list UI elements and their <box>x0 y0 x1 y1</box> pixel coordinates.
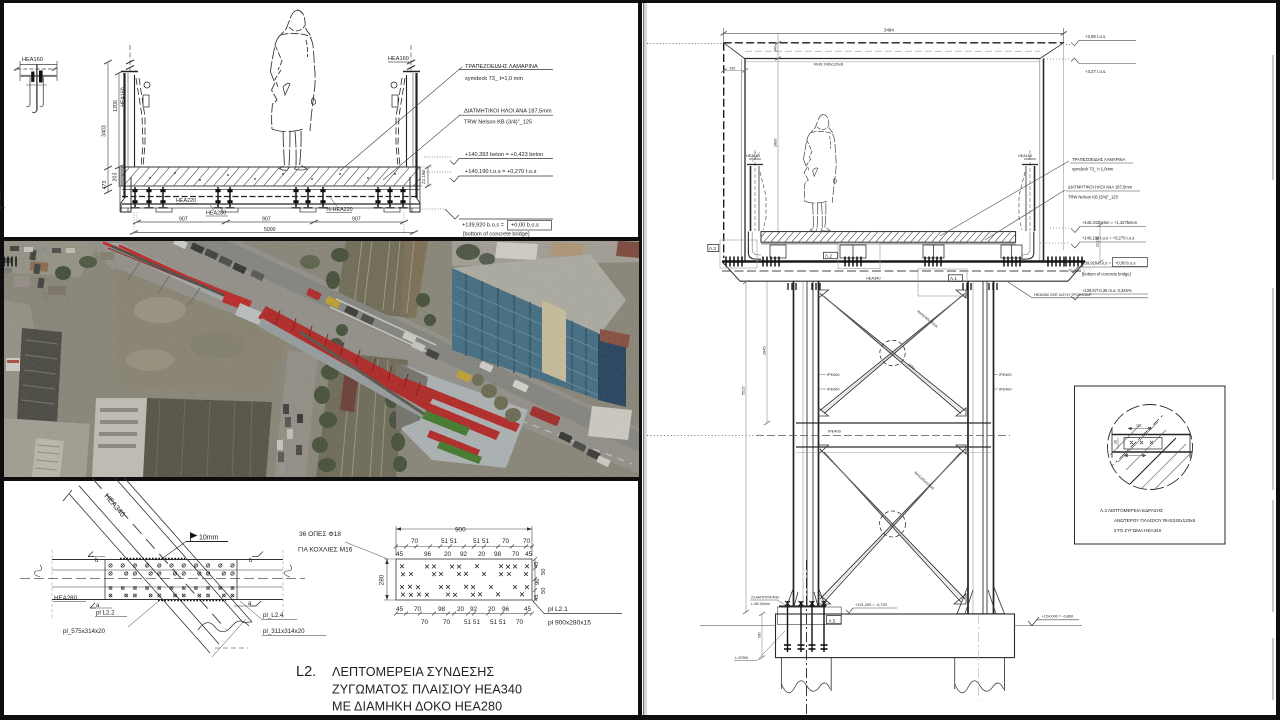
svg-text:+139,920 b.o.s =: +139,920 b.o.s = <box>462 223 504 229</box>
svg-text:907: 907 <box>262 217 271 223</box>
svg-text:[bottom of concrete bridge]: [bottom of concrete bridge] <box>463 232 530 238</box>
svg-text:pl_575x314x20: pl_575x314x20 <box>63 628 106 635</box>
svg-text:Λ.3: Λ.3 <box>709 246 716 251</box>
svg-text:23,4ΑΓΚΥΡΙΑ Φ33: 23,4ΑΓΚΥΡΙΑ Φ33 <box>751 596 779 600</box>
svg-text:HEA220: HEA220 <box>176 198 196 204</box>
svg-text:51 51: 51 51 <box>464 619 480 626</box>
svg-text:51 51: 51 51 <box>441 538 457 545</box>
svg-text:346: 346 <box>774 46 778 52</box>
svg-text:70: 70 <box>411 538 419 545</box>
svg-text:22,190: 22,190 <box>421 170 426 184</box>
svg-text:+3,80 t.o.s.: +3,80 t.o.s. <box>1085 34 1106 39</box>
svg-text:RHS 240x120x6: RHS 240x120x6 <box>814 62 844 67</box>
svg-text:51 51: 51 51 <box>490 619 506 626</box>
svg-text:45: 45 <box>396 606 404 613</box>
svg-text:142: 142 <box>729 66 735 70</box>
svg-text:ΣΤΟ ΖΥΓΩΜΑ ΗΕΑ340: ΣΤΟ ΖΥΓΩΜΑ ΗΕΑ340 <box>1114 528 1162 533</box>
svg-text:+140,190 t.o.s = +0,270 t.o.s: +140,190 t.o.s = +0,270 t.o.s <box>1082 236 1134 241</box>
svg-text:symdeck 73_ t=1,0mm: symdeck 73_ t=1,0mm <box>1072 167 1114 172</box>
svg-text:Λ.5: Λ.5 <box>829 618 836 623</box>
svg-text:+0,00 b.o.s: +0,00 b.o.s <box>511 223 539 229</box>
svg-text:TRW Nelson KB (3/4)"_125: TRW Nelson KB (3/4)"_125 <box>464 120 532 126</box>
svg-text:+124,000 = -0,800: +124,000 = -0,800 <box>1042 614 1075 619</box>
svg-text:473: 473 <box>102 181 108 190</box>
svg-text:Λ.2: Λ.2 <box>825 254 832 259</box>
svg-text:Λ.1: Λ.1 <box>950 276 957 281</box>
svg-text:ΜΕ ΔΙΑΜΗΚΗ ΔΟΚΟ ΗΕΑ280: ΜΕ ΔΙΑΜΗΚΗ ΔΟΚΟ ΗΕΑ280 <box>332 700 502 714</box>
svg-text:HEA340: HEA340 <box>866 276 881 281</box>
svg-text:70: 70 <box>516 619 524 626</box>
svg-text:HEA160: HEA160 <box>1018 154 1032 158</box>
svg-text:5000: 5000 <box>264 227 276 233</box>
svg-text:pl_L2.4: pl_L2.4 <box>263 612 284 619</box>
svg-text:IPE400: IPE400 <box>827 388 839 392</box>
svg-text:96: 96 <box>502 606 510 613</box>
svg-text:51 51: 51 51 <box>473 538 489 545</box>
svg-text:ΔΙΑΤΜΗΤΙΚΟΙ ΗΛΟΙ ΑΝΑ 187,5mm: ΔΙΑΤΜΗΤΙΚΟΙ ΗΛΟΙ ΑΝΑ 187,5mm <box>1068 185 1133 190</box>
svg-text:45: 45 <box>525 551 533 558</box>
svg-text:70: 70 <box>512 551 520 558</box>
svg-text:%-HEA220: %-HEA220 <box>326 207 353 213</box>
svg-text:pl_311x314x20: pl_311x314x20 <box>263 628 305 635</box>
svg-text:TRW Nelson KB (3/4)"_125: TRW Nelson KB (3/4)"_125 <box>1068 195 1119 200</box>
svg-text:22,190: 22,190 <box>1096 237 1100 247</box>
svg-text:ΗΕΑ280 ΣΕΕ ΛΟΞΗ ΤΡΟΧΙΟΔΡ.: ΗΕΑ280 ΣΕΕ ΛΟΞΗ ΤΡΟΧΙΟΔΡ. <box>1034 292 1092 297</box>
svg-text:HEA280: HEA280 <box>206 211 226 217</box>
svg-text:+140,190 t.o.s = +0,270 t.o.: +140,190 t.o.s = +0,270 t.o.s <box>465 169 537 175</box>
svg-text:20: 20 <box>478 551 486 558</box>
svg-text:HEA160: HEA160 <box>388 56 409 62</box>
svg-text:90: 90 <box>535 579 541 585</box>
svg-text:70: 70 <box>502 538 510 545</box>
svg-text:280: 280 <box>379 574 386 585</box>
svg-text:45: 45 <box>396 551 404 558</box>
svg-text:ΓΙΑ ΚΟΧΛΙΕΣ Μ16: ΓΙΑ ΚΟΧΛΙΕΣ Μ16 <box>298 547 353 554</box>
svg-text:HEA160: HEA160 <box>746 154 760 158</box>
svg-text:+140,343beton = +1,427beton: +140,343beton = +1,427beton <box>1082 220 1138 225</box>
svg-text:900: 900 <box>455 527 466 534</box>
svg-text:50: 50 <box>541 569 547 575</box>
svg-text:10mm: 10mm <box>199 535 219 542</box>
svg-text:+131,200 = -0,720: +131,200 = -0,720 <box>855 602 888 607</box>
svg-text:pl L2.2: pl L2.2 <box>96 610 115 617</box>
svg-text:3403: 3403 <box>102 125 108 137</box>
svg-text:L=97500: L=97500 <box>735 656 748 660</box>
svg-text:IPE400: IPE400 <box>999 388 1011 392</box>
svg-text:907: 907 <box>179 217 188 223</box>
svg-text:HEA280: HEA280 <box>54 595 78 602</box>
svg-text:ΤΡΑΠΕΖΟΕΙΔΗΣ ΛΑΜΑΡΙΝΑ: ΤΡΑΠΕΖΟΕΙΔΗΣ ΛΑΜΑΡΙΝΑ <box>1072 157 1125 162</box>
svg-text:+3,27 t.o.s.: +3,27 t.o.s. <box>1085 69 1106 74</box>
svg-text:20: 20 <box>444 551 452 558</box>
svg-text:96: 96 <box>424 551 432 558</box>
svg-text:70: 70 <box>443 619 451 626</box>
svg-text:50: 50 <box>541 588 547 594</box>
svg-text:70: 70 <box>421 619 429 626</box>
svg-text:45: 45 <box>524 606 532 613</box>
svg-text:1200: 1200 <box>113 100 119 112</box>
svg-text:70: 70 <box>523 538 531 545</box>
svg-text:203: 203 <box>113 173 119 182</box>
svg-text:[bottom of concrete bridge]: [bottom of concrete bridge] <box>1082 272 1131 277</box>
svg-text:20: 20 <box>457 606 465 613</box>
svg-text:+0,00 b.o.s: +0,00 b.o.s <box>1115 261 1135 266</box>
svg-text:5515: 5515 <box>742 387 746 395</box>
svg-text:500: 500 <box>758 632 762 638</box>
svg-text:70: 70 <box>414 606 422 613</box>
svg-text:2845: 2845 <box>763 347 767 355</box>
svg-text:ΤΡΑΠΕΖΟΕΙΔΗΣ ΛΑΜΑΡΙΝΑ: ΤΡΑΠΕΖΟΕΙΔΗΣ ΛΑΜΑΡΙΝΑ <box>465 64 538 70</box>
svg-text:HEA160: HEA160 <box>22 57 43 63</box>
svg-text:98: 98 <box>438 606 446 613</box>
svg-text:+139,920 b.o.s =: +139,920 b.o.s = <box>1080 261 1111 266</box>
svg-text:ΔΙΑΤΜΗΤΙΚΟΙ ΗΛΟΙ ΑΝΑ 187,5mm: ΔΙΑΤΜΗΤΙΚΟΙ ΗΛΟΙ ΑΝΑ 187,5mm <box>464 109 552 115</box>
svg-text:92: 92 <box>470 606 478 613</box>
svg-text:112: 112 <box>1136 424 1142 428</box>
svg-text:28: 28 <box>1114 440 1118 444</box>
svg-text:L2.: L2. <box>296 664 316 680</box>
svg-text:36 ΟΠΕΣ Φ18: 36 ΟΠΕΣ Φ18 <box>299 531 341 538</box>
svg-text:symdeck 73_ t=1,0 mm: symdeck 73_ t=1,0 mm <box>465 76 523 82</box>
svg-text:ΖΥΓΩΜΑΤΟΣ ΠΛΑΙΣΙΟΥ ΗΕΑ340: ΖΥΓΩΜΑΤΟΣ ΠΛΑΙΣΙΟΥ ΗΕΑ340 <box>332 683 522 697</box>
svg-text:ΑΝΩΤΕΡΟΥ ΠΛΑΙΣΙΟΥ RHS240x120x6: ΑΝΩΤΕΡΟΥ ΠΛΑΙΣΙΟΥ RHS240x120x6 <box>1114 518 1196 523</box>
svg-text:2800: 2800 <box>774 139 778 147</box>
svg-text:IPE400: IPE400 <box>828 429 842 434</box>
svg-text:Λ.3 ΛΕΠΤΟΜΕΡΕΙΑ ΕΔΡΑΣΗΣ: Λ.3 ΛΕΠΤΟΜΕΡΕΙΑ ΕΔΡΑΣΗΣ <box>1100 508 1163 513</box>
svg-text:ΛΕΠΤΟΜΕΡΕΙΑ ΣΥΝΔΕΣΗΣ: ΛΕΠΤΟΜΕΡΕΙΑ ΣΥΝΔΕΣΗΣ <box>332 665 494 679</box>
svg-text:pl 900x280x15: pl 900x280x15 <box>548 620 591 627</box>
svg-text:20: 20 <box>488 606 496 613</box>
svg-text:L=80 3,0mm: L=80 3,0mm <box>751 602 770 606</box>
svg-text:92: 92 <box>460 551 468 558</box>
svg-text:3494: 3494 <box>884 28 894 33</box>
svg-text:+140,393 beton = +0,423 beton: +140,393 beton = +0,423 beton <box>465 152 543 158</box>
svg-text:IPE400: IPE400 <box>999 373 1011 377</box>
svg-text:98: 98 <box>494 551 502 558</box>
svg-text:pl L2.1: pl L2.1 <box>548 606 568 613</box>
svg-text:IPE400: IPE400 <box>827 373 839 377</box>
svg-text:907: 907 <box>352 217 361 223</box>
